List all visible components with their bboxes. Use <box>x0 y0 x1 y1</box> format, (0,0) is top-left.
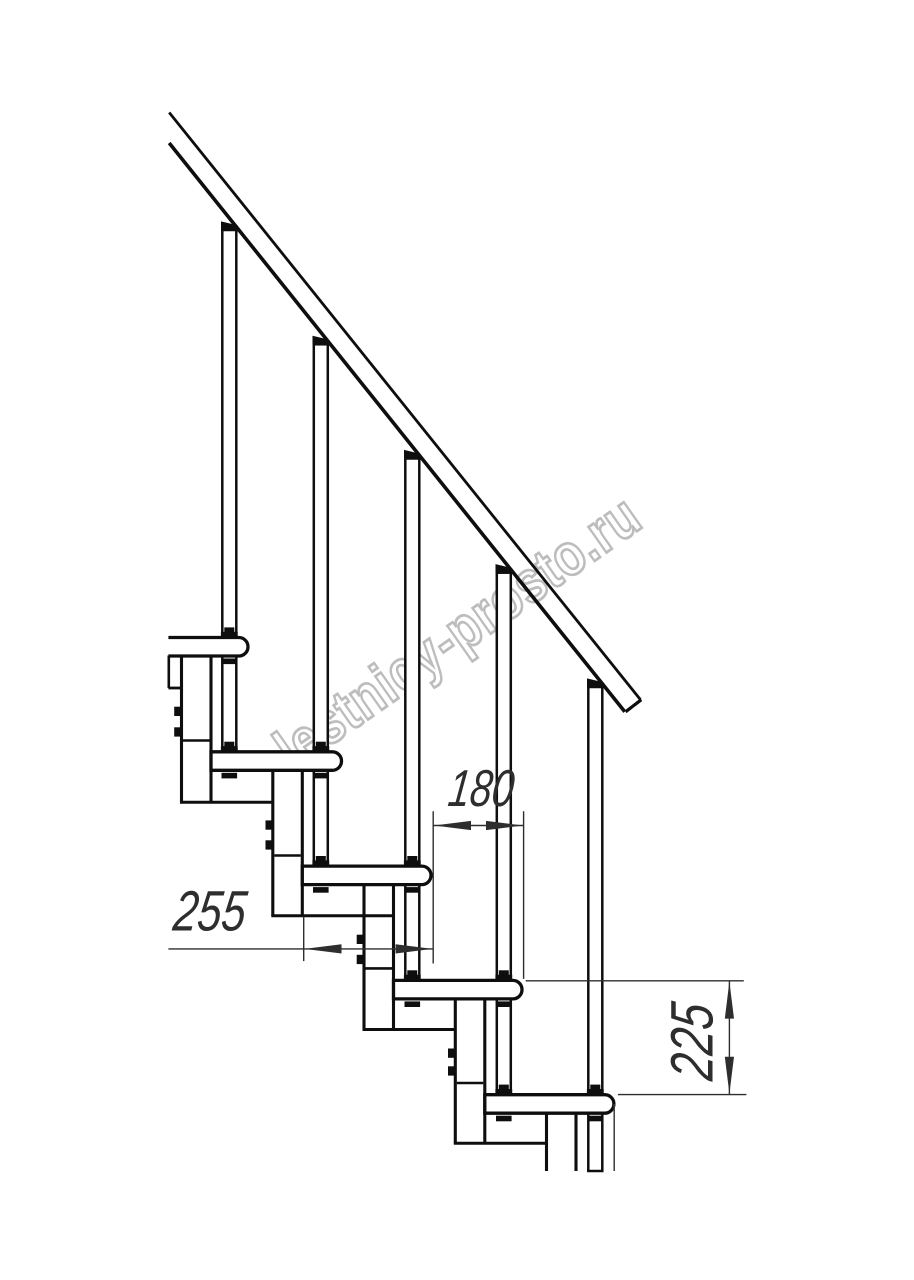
svg-text:225: 225 <box>658 998 726 1083</box>
svg-text:255: 255 <box>170 880 251 944</box>
svg-text:180: 180 <box>445 760 517 818</box>
